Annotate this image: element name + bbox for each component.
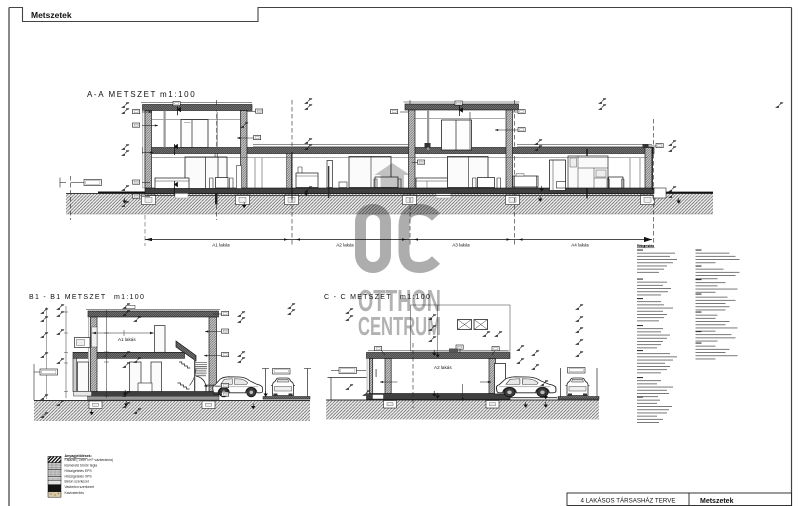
svg-text:A1 lakás: A1 lakás — [118, 337, 136, 342]
svg-text:Rétegrendek:: Rétegrendek: — [637, 244, 654, 248]
svg-text:Beton szerkezet: Beton szerkezet — [65, 480, 89, 484]
svg-text:Metszetek: Metszetek — [700, 498, 734, 505]
svg-text:A1 lakás: A1 lakás — [212, 243, 230, 248]
svg-text:Metszetek: Metszetek — [31, 10, 72, 20]
svg-text:A-A METSZET: A-A METSZET — [87, 90, 157, 99]
svg-text:Vasbeton szerkezet: Vasbeton szerkezet — [65, 485, 95, 489]
svg-text:m1:100: m1:100 — [114, 294, 145, 301]
svg-text:4 LAKÁSOS TÁRSASHÁZ TERVE: 4 LAKÁSOS TÁRSASHÁZ TERVE — [581, 498, 676, 505]
svg-text:A2 lakás: A2 lakás — [434, 365, 452, 370]
svg-text:CENTRUM: CENTRUM — [358, 311, 441, 341]
svg-text:Falazat ( Leier N+F vázkerámia: Falazat ( Leier N+F vázkerámia) — [65, 458, 114, 462]
svg-text:A3 lakás: A3 lakás — [452, 243, 470, 248]
svg-text:A4 lakás: A4 lakás — [571, 243, 589, 248]
svg-text:Hőszigetelés XPS: Hőszigetelés XPS — [65, 474, 93, 478]
svg-text:B1 - B1 METSZET: B1 - B1 METSZET — [29, 294, 106, 301]
svg-text:A2 lakás: A2 lakás — [336, 243, 354, 248]
svg-text:m1:100: m1:100 — [160, 90, 196, 99]
svg-text:Hőszigetelés EPS: Hőszigetelés EPS — [65, 469, 93, 473]
svg-text:kisméretű tömör tégla: kisméretű tömör tégla — [65, 463, 98, 467]
svg-text:Anyagjelölések:: Anyagjelölések: — [65, 454, 92, 458]
svg-text:Kavicsterítés: Kavicsterítés — [65, 491, 85, 495]
